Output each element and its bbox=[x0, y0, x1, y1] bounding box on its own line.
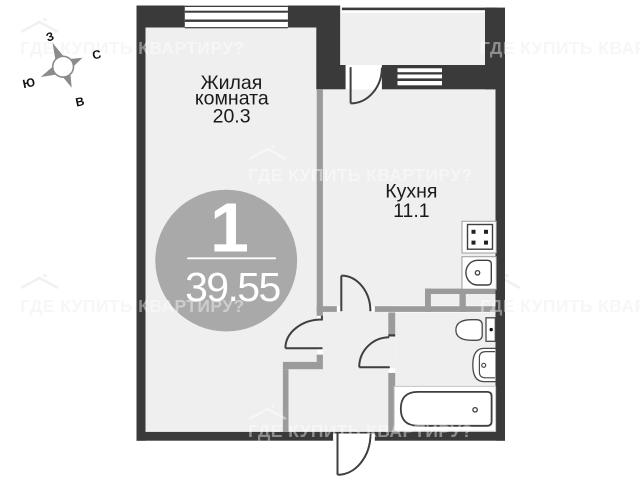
svg-text:Ю: Ю bbox=[21, 75, 36, 91]
svg-text:20.3: 20.3 bbox=[213, 106, 251, 128]
svg-text:С: С bbox=[91, 47, 103, 63]
svg-text:В: В bbox=[74, 94, 86, 110]
svg-text:1: 1 bbox=[210, 189, 249, 267]
svg-text:11.1: 11.1 bbox=[393, 200, 430, 222]
svg-text:З: З bbox=[44, 29, 55, 45]
